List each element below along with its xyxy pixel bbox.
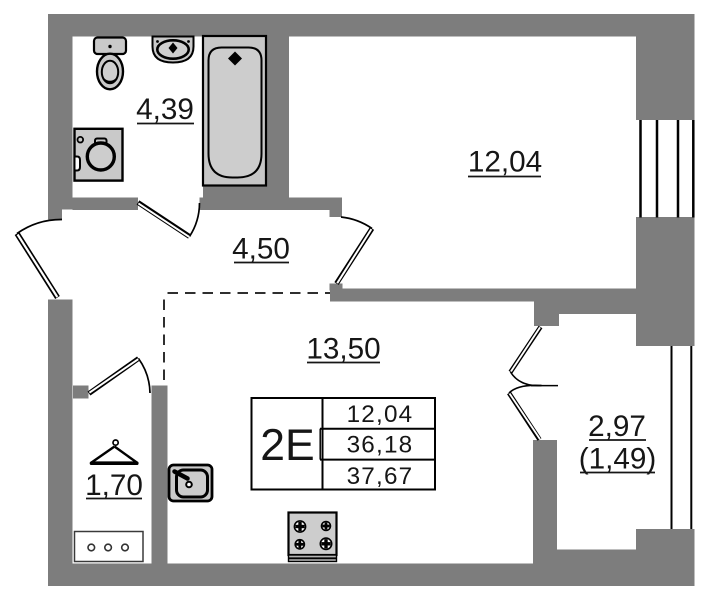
svg-text:(1,49): (1,49) <box>579 443 657 476</box>
svg-text:36,18: 36,18 <box>347 432 414 459</box>
svg-text:1,70: 1,70 <box>85 469 143 502</box>
svg-text:12,04: 12,04 <box>468 146 542 179</box>
svg-text:12,04: 12,04 <box>347 401 414 428</box>
svg-text:37,67: 37,67 <box>347 463 414 490</box>
svg-text:2,97: 2,97 <box>588 410 646 443</box>
svg-text:13,50: 13,50 <box>306 333 380 366</box>
svg-text:2E: 2E <box>260 421 314 470</box>
svg-text:4,50: 4,50 <box>232 233 290 266</box>
svg-text:4,39: 4,39 <box>136 93 194 126</box>
